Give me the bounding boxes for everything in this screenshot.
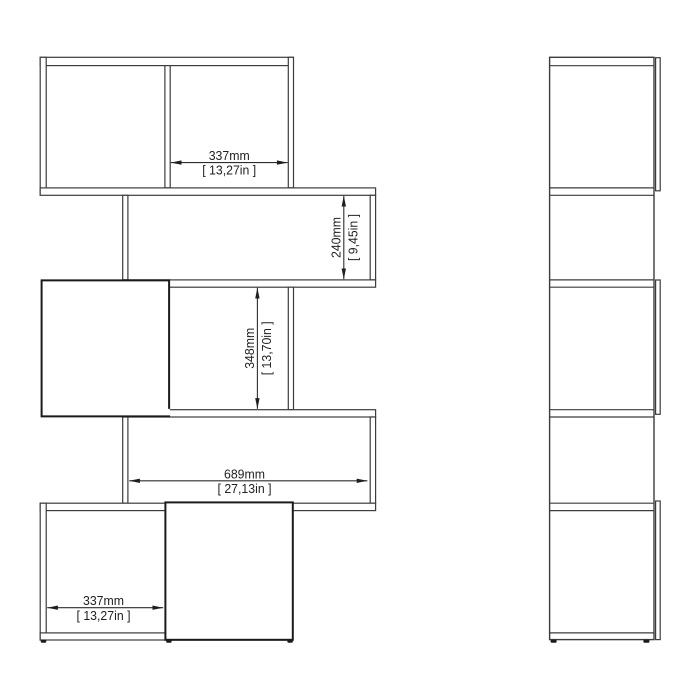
svg-text:689mm: 689mm [224,467,265,481]
svg-text:[ 27,13in ]: [ 27,13in ] [218,482,272,496]
svg-text:337mm: 337mm [209,149,250,163]
svg-text:[ 9,45in ]: [ 9,45in ] [346,214,360,261]
svg-text:[ 13,27in ]: [ 13,27in ] [77,609,131,623]
svg-text:337mm: 337mm [83,594,124,608]
svg-text:240mm: 240mm [329,217,343,258]
svg-text:[ 13,27in ]: [ 13,27in ] [202,164,256,178]
svg-text:348mm: 348mm [243,328,257,369]
svg-text:[ 13,70in ]: [ 13,70in ] [260,321,274,375]
